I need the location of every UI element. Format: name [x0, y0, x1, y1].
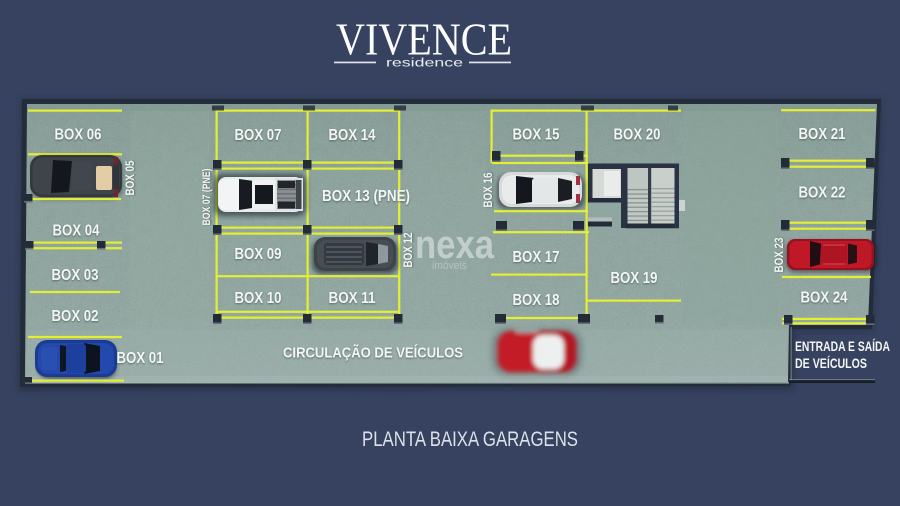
svg-text:BOX 11: BOX 11	[329, 290, 376, 307]
svg-text:BOX 22: BOX 22	[799, 185, 846, 202]
svg-text:DE VEÍCULOS: DE VEÍCULOS	[795, 356, 867, 371]
svg-text:BOX 12: BOX 12	[401, 232, 415, 267]
svg-text:ENTRADA E SAÍDA: ENTRADA E SAÍDA	[795, 339, 890, 354]
svg-text:BOX 07 (PNE): BOX 07 (PNE)	[201, 168, 213, 225]
svg-text:residence: residence	[386, 58, 463, 70]
svg-text:BOX 09: BOX 09	[235, 246, 282, 263]
svg-text:BOX 10: BOX 10	[235, 290, 282, 307]
svg-text:BOX 01: BOX 01	[117, 350, 164, 367]
svg-text:BOX 18: BOX 18	[513, 292, 560, 309]
svg-text:BOX 20: BOX 20	[614, 127, 661, 144]
svg-text:BOX 15: BOX 15	[513, 127, 560, 144]
svg-text:BOX 17: BOX 17	[513, 249, 560, 266]
svg-text:BOX 14: BOX 14	[329, 127, 376, 144]
svg-text:BOX 07: BOX 07	[235, 127, 282, 144]
svg-text:BOX 05: BOX 05	[123, 160, 137, 195]
svg-text:BOX 06: BOX 06	[55, 127, 102, 144]
svg-text:BOX 13 (PNE): BOX 13 (PNE)	[322, 188, 410, 205]
svg-text:BOX 04: BOX 04	[53, 223, 100, 240]
svg-text:BOX 23: BOX 23	[772, 237, 786, 272]
svg-text:BOX 16: BOX 16	[481, 172, 495, 207]
svg-text:BOX 03: BOX 03	[52, 267, 99, 284]
svg-text:BOX 02: BOX 02	[52, 308, 99, 325]
svg-text:BOX 21: BOX 21	[799, 126, 846, 143]
svg-text:BOX 24: BOX 24	[801, 290, 848, 307]
svg-text:PLANTA BAIXA GARAGENS: PLANTA BAIXA GARAGENS	[362, 428, 578, 451]
svg-text:CIRCULAÇÃO DE VEÍCULOS: CIRCULAÇÃO DE VEÍCULOS	[283, 344, 463, 362]
svg-text:imóveis: imóveis	[432, 260, 467, 272]
svg-text:BOX 19: BOX 19	[611, 270, 658, 287]
